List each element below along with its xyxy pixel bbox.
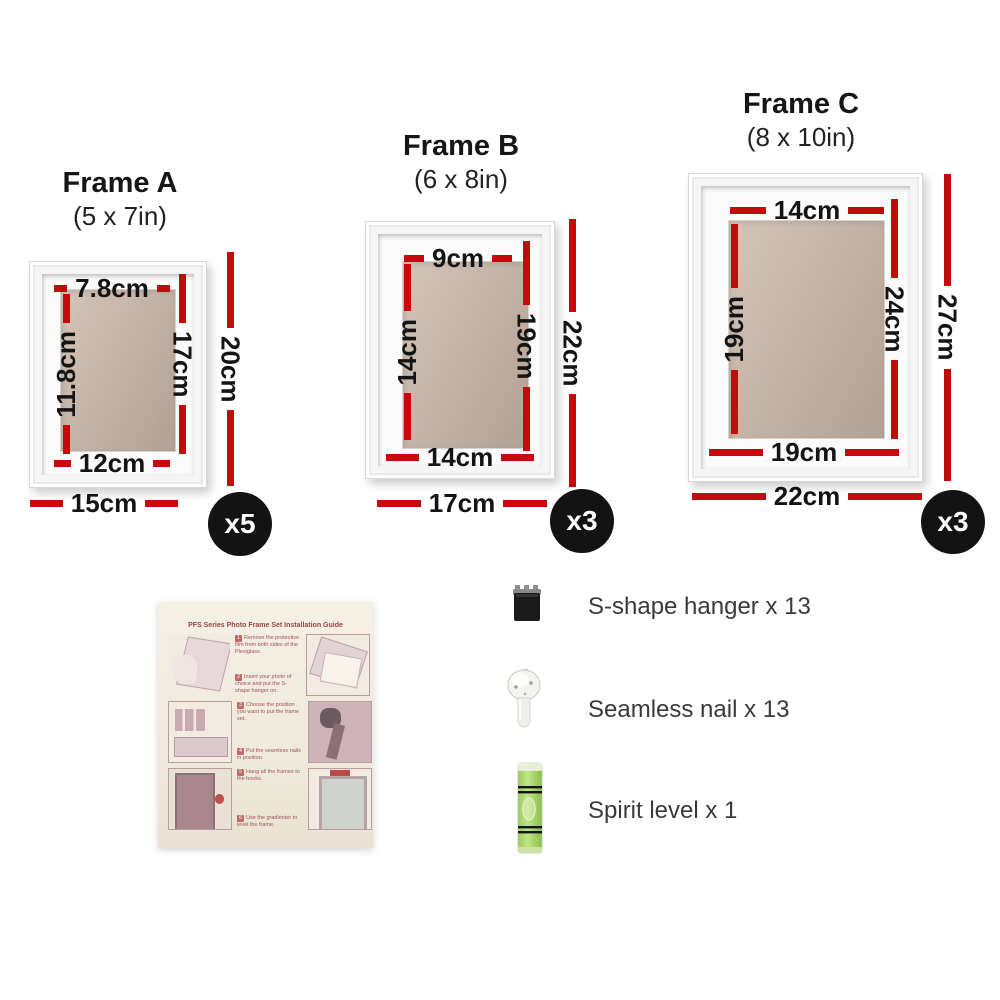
frame-b-inner-right-height-dimension: 19cm [512,241,540,451]
dimension-bar [404,264,411,311]
dimension-bar [501,454,534,461]
guide-step-number: 5 [237,769,244,776]
dimension-bar [569,219,576,312]
frame-a-quantity-badge: x5 [208,492,272,556]
guide-row: 1Remove the protective film from both si… [168,634,363,696]
dimension-value: 27cm [932,286,963,369]
dimension-value: 20cm [215,328,246,411]
dimension-bar [54,285,67,292]
dimension-bar [709,449,763,456]
frame-b-quantity-badge: x3 [550,489,614,553]
dimension-bar [891,199,898,278]
dimension-bar [944,174,951,286]
spirit-level-icon [516,762,544,859]
dimension-bar [503,500,547,507]
dimension-value: 12cm [71,448,154,479]
guide-step: 5Hang all the frames to the hooks. [237,769,303,783]
dimension-value: 11.8cm [51,323,82,426]
dimension-bar [179,274,186,323]
dimension-bar [179,405,186,454]
guide-illustration-hammer-nail [308,701,372,763]
guide-step: 1Remove the protective film from both si… [235,635,301,656]
dimension-bar [523,387,530,451]
guide-step: 4Put the seamless nails in position. [237,748,303,762]
dimension-value: 17cm [421,488,504,519]
dimension-bar [377,500,421,507]
frame-c-inner-right-height-dimension: 24cm [880,199,908,439]
guide-row: 5Hang all the frames to the hooks. 6Use … [168,768,363,830]
frame-c-inner-left-height-dimension: 19cm [720,224,748,434]
dimension-bar [63,294,70,323]
guide-step-number: 6 [237,815,244,822]
frame-a-outer-width-dimension: 15cm [30,489,178,517]
guide-step: 3Choose the position you want to put the… [237,702,303,723]
dimension-value: 22cm [766,481,849,512]
dimension-bar [386,454,419,461]
frame-b-size-label: (6 x 8in) [361,164,561,195]
dimension-value: 22cm [557,312,588,395]
guide-step-number: 4 [237,748,244,755]
accessory-label-spirit-level: Spirit level x 1 [588,797,737,825]
dimension-bar [845,449,899,456]
guide-illustration-peel-film [168,634,230,696]
frame-a-size-label: (5 x 7in) [20,201,220,232]
frame-c-inner-bottom-width-dimension: 19cm [709,438,899,466]
guide-step-text-column: 5Hang all the frames to the hooks. 6Use … [235,768,305,830]
dimension-bar [848,493,922,500]
guide-step-text-column: 3Choose the position you want to put the… [235,701,305,763]
installation-guide-sheet: PFS Series Photo Frame Set Installation … [158,602,373,848]
dimension-value: 19cm [763,437,846,468]
frame-b-outer-width-dimension: 17cm [377,489,547,517]
dimension-bar [404,255,424,262]
dimension-bar [730,207,766,214]
frame-c-outer-width-dimension: 22cm [692,482,922,510]
accessory-label-seamless-nail: Seamless nail x 13 [588,696,789,724]
s-shape-hanger-icon [511,583,543,628]
dimension-value: 24cm [879,278,910,361]
dimension-value: 19cm [719,288,750,371]
accessory-label-s-shape-hanger: S-shape hanger x 13 [588,593,811,621]
dimension-value: 9cm [424,243,492,274]
guide-title: PFS Series Photo Frame Set Installation … [158,602,373,629]
guide-step: 6Use the gradienter to level the frame. [237,815,303,829]
dimension-bar [153,460,170,467]
dimension-bar [944,369,951,481]
guide-step-text: Remove the protective film from both sid… [235,635,299,655]
guide-illustration-insert-photo [306,634,370,696]
dimension-bar [145,500,178,507]
frame-c-quantity-badge: x3 [921,490,985,554]
frame-c-size-label: (8 x 10in) [701,122,901,153]
guide-illustration-hang-frames [168,768,232,830]
frame-b-outer-height-dimension: 22cm [558,219,586,487]
dimension-value: 19cm [511,305,542,388]
dimension-bar [227,252,234,328]
dimension-value: 14cm [766,195,849,226]
frame-a-inner-left-height-dimension: 11.8cm [52,294,80,454]
seamless-nail-icon [505,667,543,734]
guide-illustration-level-frame [308,768,372,830]
guide-row: 3Choose the position you want to put the… [168,701,363,763]
dimension-bar [492,255,512,262]
guide-step-number: 2 [235,674,242,681]
dimension-bar [731,224,738,288]
guide-step-text: Put the seamless nails in position. [237,748,301,761]
frame-c-photo-backing [729,221,884,438]
dimension-bar [692,493,766,500]
dimension-bar [731,370,738,434]
dimension-value: 17cm [167,323,198,406]
guide-step-text: Choose the position you want to put the … [237,702,299,722]
dimension-bar [569,394,576,487]
guide-step-text: Insert your photo of choice and put the … [235,674,291,694]
dimension-value: 15cm [63,488,146,519]
frame-b-inner-left-height-dimension: 14cm [393,264,421,440]
frame-a-title: Frame A [20,167,220,200]
frame-c-outer-height-dimension: 27cm [933,174,961,481]
dimension-bar [404,393,411,440]
dimension-bar [227,410,234,486]
guide-step-text-column: 1Remove the protective film from both si… [233,634,303,696]
dimension-value: 14cm [419,442,502,473]
frame-c-inner-width-dimension: 14cm [730,196,884,224]
guide-step-number: 1 [235,635,242,642]
frame-a-outer-height-dimension: 20cm [216,252,244,486]
dimension-bar [848,207,884,214]
dimension-bar [523,241,530,305]
dimension-value: 7.8cm [67,273,157,304]
guide-illustration-wall-layout [168,701,232,763]
dimension-bar [30,500,63,507]
frame-c-title: Frame C [701,88,901,121]
frame-b-title: Frame B [361,130,561,163]
guide-step-text: Use the gradienter to level the frame. [237,815,297,828]
frame-a-inner-bottom-width-dimension: 12cm [54,449,170,477]
frame-a-inner-right-height-dimension: 17cm [168,274,196,454]
frame-b-inner-bottom-width-dimension: 14cm [386,443,534,471]
dimension-bar [891,360,898,439]
guide-step: 2Insert your photo of choice and put the… [235,674,301,695]
guide-step-number: 3 [237,702,244,709]
dimension-bar [54,460,71,467]
dimension-value: 14cm [392,311,423,394]
guide-step-text: Hang all the frames to the hooks. [237,769,300,782]
